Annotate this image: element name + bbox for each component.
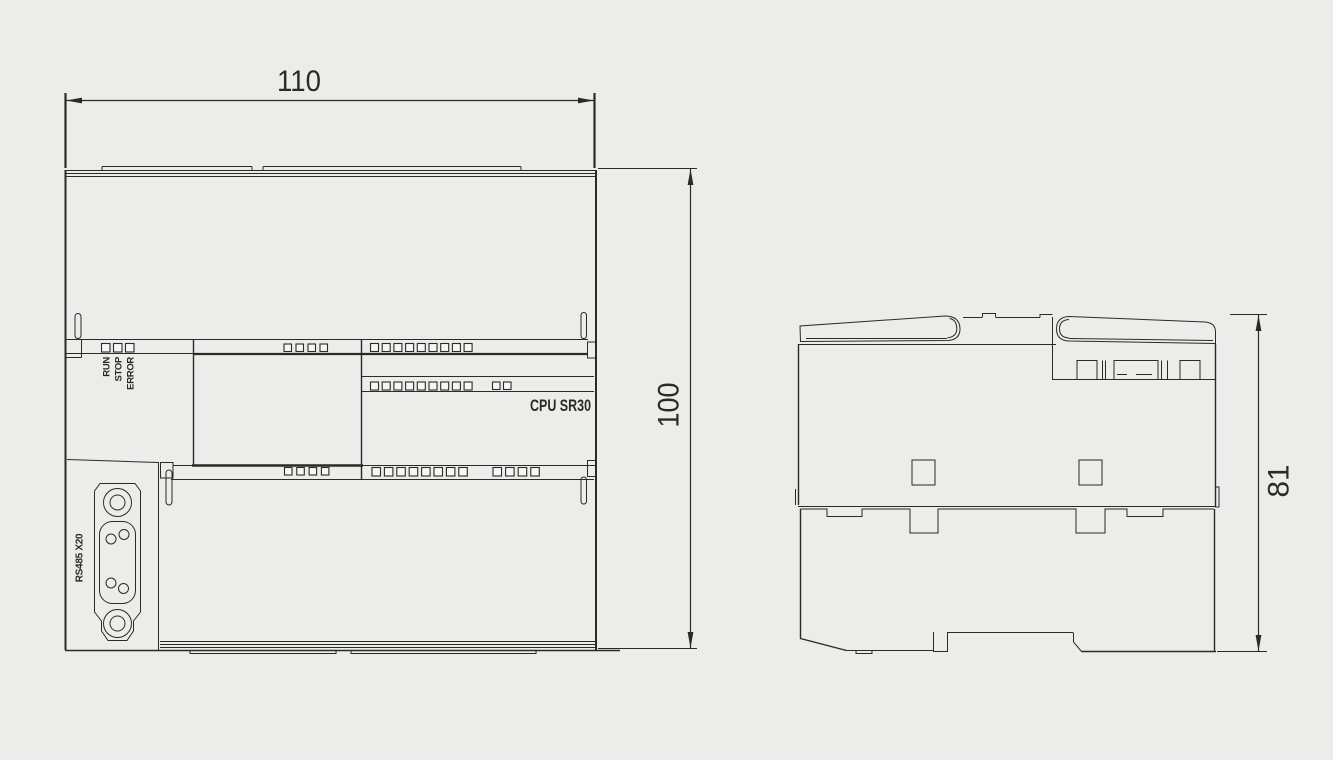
dimension-width-value: 110 (277, 65, 321, 98)
arrow-up-icon (1256, 315, 1262, 331)
side-top-flaps (800, 314, 1216, 345)
terminal-squares-bottom-b (493, 468, 539, 477)
connector-plate (95, 484, 141, 641)
model-label: CPU SR30 (530, 396, 591, 415)
din-clip-bottom-right (581, 477, 587, 504)
dimension-height: 100 (598, 169, 697, 649)
arrow-up-icon (688, 169, 694, 185)
din-clip-top-right (581, 313, 587, 339)
dimension-depth: 81 (1217, 315, 1296, 652)
dsub-pin (119, 584, 129, 594)
front-top-cover (65, 167, 597, 177)
din-clip-bottom-left (166, 470, 172, 505)
led-label-error: ERROR (126, 357, 137, 390)
terminal-squares-top-mid (284, 344, 328, 352)
arrow-down-icon (688, 632, 694, 648)
rs485-port-panel: RS485 X20 (67, 460, 159, 651)
screw-hole-top-inner (110, 495, 125, 510)
port-label: RS485 X20 (75, 533, 86, 582)
indicator-squares-mid-b (493, 382, 512, 390)
screw-hole-bottom (104, 610, 132, 638)
dsub-connector (100, 522, 136, 604)
arrow-left-icon (66, 98, 82, 104)
screw-hole-top (104, 489, 132, 517)
dsub-pin (119, 530, 129, 540)
flap-left (800, 316, 960, 342)
access-door (192, 339, 363, 480)
dimension-height-value: 100 (653, 383, 686, 428)
mounting-hole (1079, 460, 1102, 485)
dimension-depth-value: 81 (1263, 465, 1296, 498)
terminal-squares-bottom-a (372, 468, 467, 477)
terminal-squares-top-right (371, 344, 473, 352)
indicator-squares-mid-a (371, 382, 473, 390)
side-top-step-detail (1053, 317, 1216, 380)
front-view: 110 100 (65, 65, 697, 654)
mounting-hole (912, 460, 935, 485)
side-lower-housing (801, 509, 1217, 654)
dsub-pin (106, 534, 116, 544)
dimension-width: 110 (66, 65, 595, 168)
arrow-right-icon (578, 98, 594, 104)
status-led-squares (102, 344, 135, 353)
arrow-down-icon (1256, 635, 1262, 651)
side-view: 81 (796, 314, 1296, 654)
led-label-run: RUN (102, 357, 113, 377)
terminal-squares-bottom-mid (285, 468, 329, 476)
screw-hole-bottom-inner (110, 616, 125, 631)
dsub-pin (106, 578, 116, 588)
terminal-band-top (65, 313, 597, 359)
side-upper-housing (796, 344, 1220, 507)
dimension-drawing: 110 100 (0, 0, 1333, 760)
din-clip-top-left (75, 314, 81, 339)
led-label-stop: STOP (114, 356, 125, 381)
